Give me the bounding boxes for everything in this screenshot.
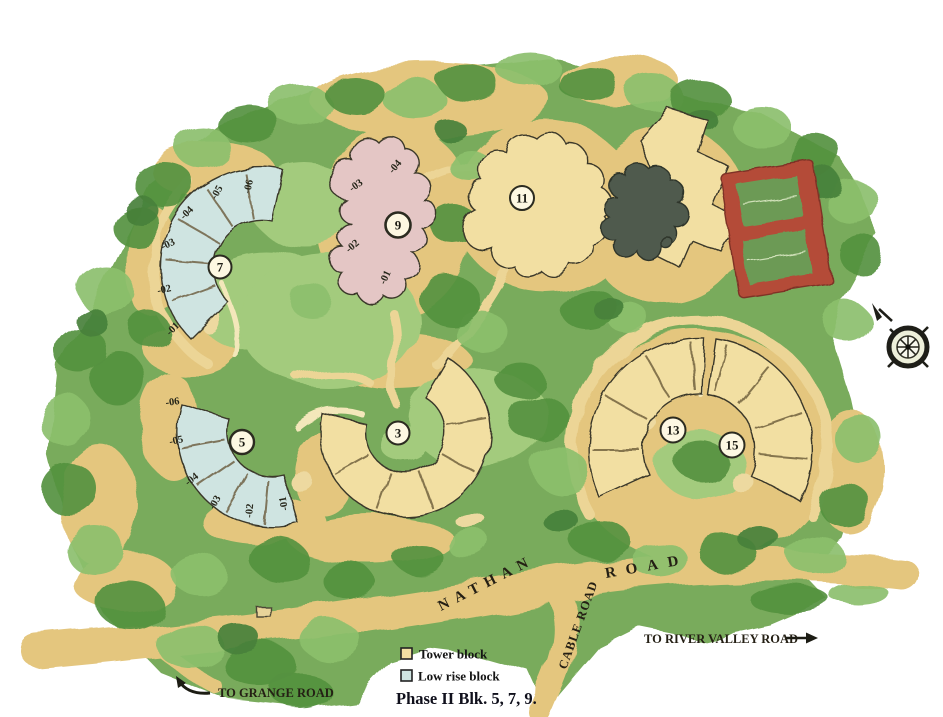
- svg-text:5: 5: [239, 435, 246, 450]
- svg-text:15: 15: [726, 438, 740, 453]
- legend-tower-label: Tower block: [419, 647, 488, 662]
- block-13-badge: 13: [661, 418, 686, 443]
- svg-text:3: 3: [395, 426, 402, 441]
- block-11-badge: 11: [510, 186, 534, 210]
- path-9-south: [392, 312, 397, 404]
- svg-text:13: 13: [667, 423, 681, 438]
- legend-item-low-rise: Low rise block: [401, 669, 500, 684]
- north-arrow: [879, 309, 892, 321]
- unit-label: -02: [244, 503, 256, 518]
- low-rise-swatch: [401, 670, 412, 681]
- pond-small: [660, 236, 672, 248]
- legend-low-rise-label: Low rise block: [418, 669, 500, 684]
- tower-swatch: [401, 648, 412, 659]
- block-15-badge: 15: [720, 433, 745, 458]
- hut: [256, 606, 270, 616]
- svg-text:7: 7: [217, 260, 224, 275]
- block-9-badge: 9: [386, 213, 411, 238]
- compass-icon: [872, 303, 928, 367]
- block-3-badge: 3: [387, 422, 410, 445]
- block-5-badge: 5: [230, 430, 254, 454]
- unit-label: -06: [165, 396, 180, 409]
- to-grange-label: TO GRANGE ROAD: [218, 686, 334, 700]
- phase-note: Phase II Blk. 5, 7, 9.: [396, 689, 537, 708]
- site-map: -01 -02 -03 -04 -05 -06 -01 -02 -03 -04 …: [0, 0, 943, 717]
- to-river-valley-label: TO RIVER VALLEY ROAD: [644, 632, 798, 646]
- block-7-badge: 7: [209, 256, 232, 279]
- svg-text:11: 11: [516, 191, 528, 206]
- svg-text:9: 9: [395, 218, 402, 233]
- tennis-courts: [720, 159, 833, 298]
